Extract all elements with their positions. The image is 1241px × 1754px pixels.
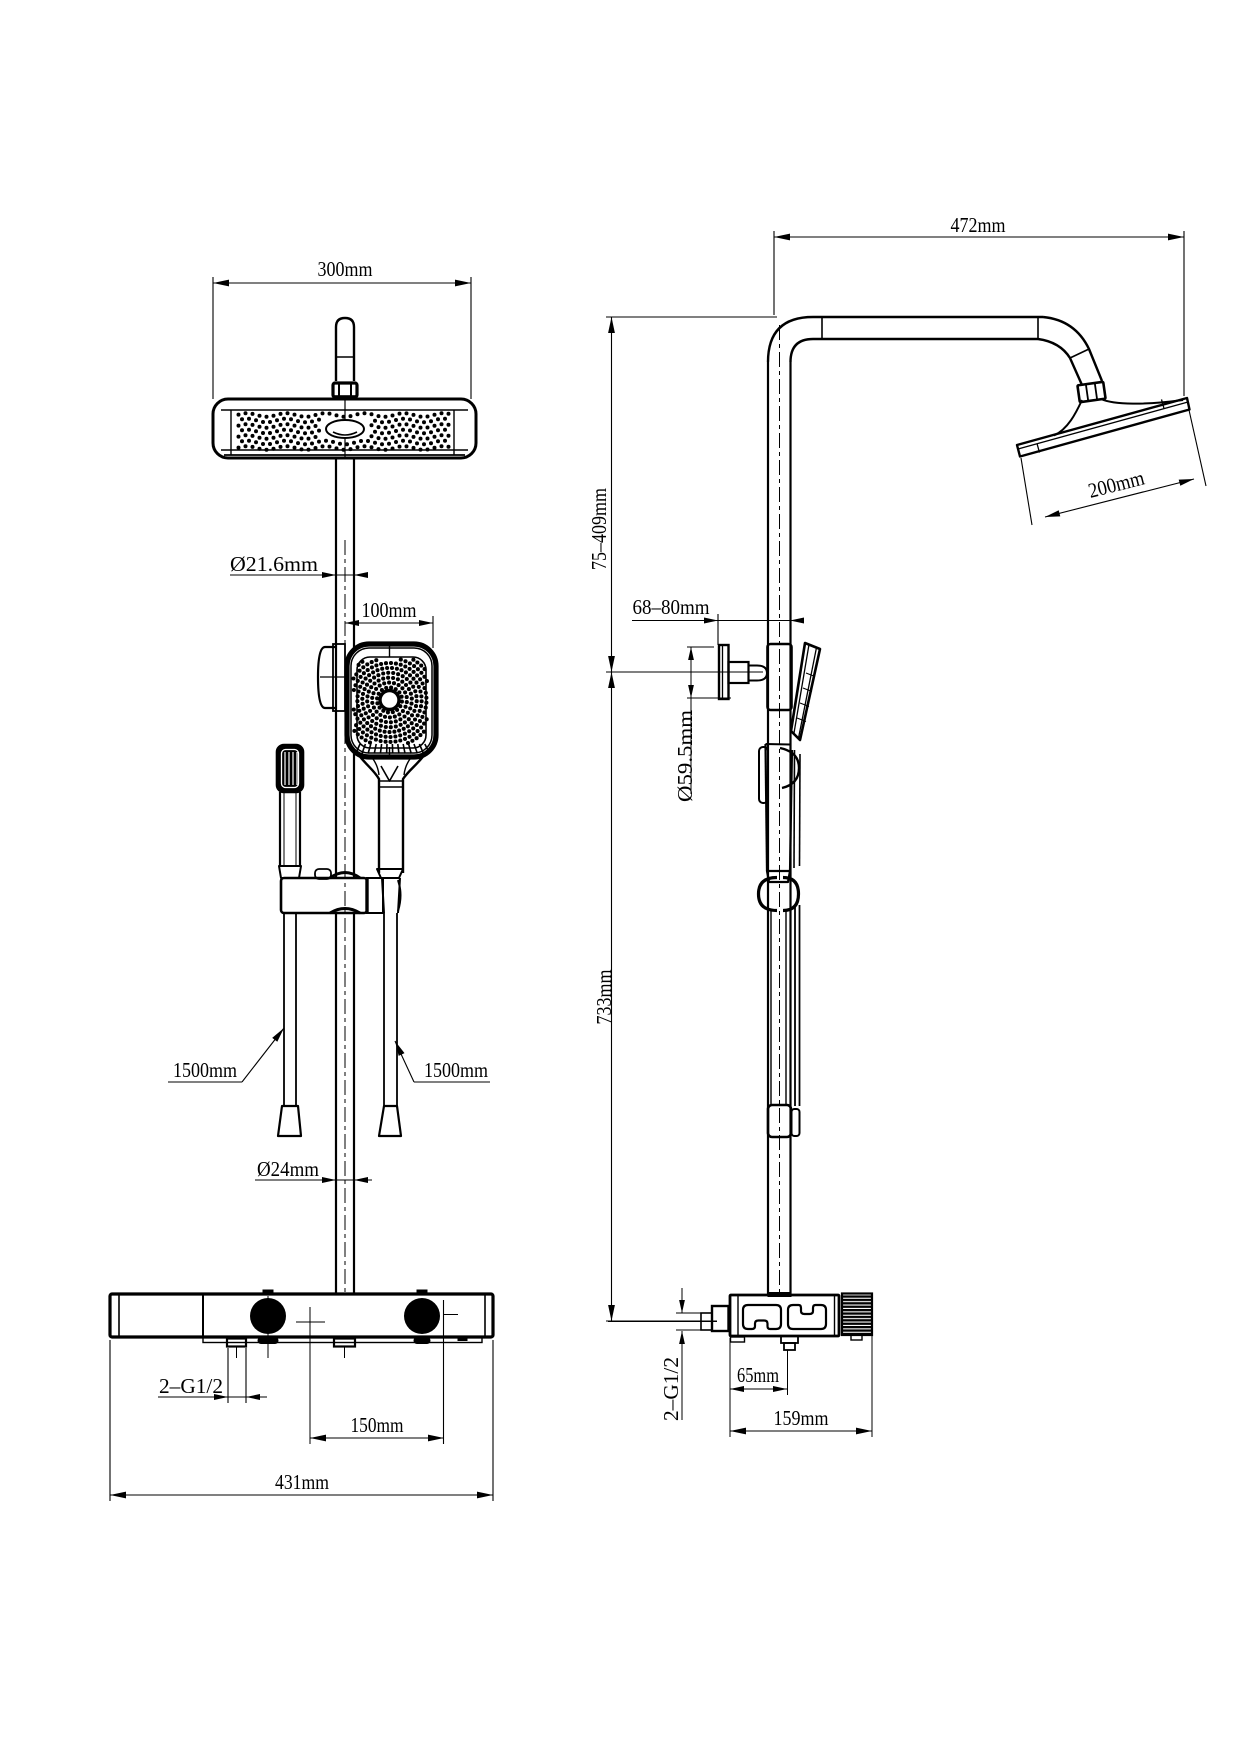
svg-text:159mm: 159mm [774,1406,829,1430]
svg-text:100mm: 100mm [362,598,417,622]
svg-text:Ø59.5mm: Ø59.5mm [673,710,697,802]
svg-text:Ø21.6mm: Ø21.6mm [230,552,318,576]
svg-text:Ø24mm: Ø24mm [257,1157,319,1181]
svg-text:1500mm: 1500mm [424,1058,488,1082]
svg-text:1500mm: 1500mm [173,1058,237,1082]
svg-text:472mm: 472mm [951,213,1006,237]
svg-text:2–G1/2: 2–G1/2 [659,1357,683,1421]
svg-text:300mm: 300mm [318,257,373,281]
svg-text:75–409mm: 75–409mm [587,488,611,570]
svg-text:65mm: 65mm [737,1363,779,1387]
svg-text:68–80mm: 68–80mm [633,595,710,619]
svg-text:733mm: 733mm [592,970,616,1025]
svg-text:150mm: 150mm [351,1413,404,1437]
svg-text:2–G1/2: 2–G1/2 [159,1374,223,1398]
svg-text:431mm: 431mm [275,1470,329,1494]
